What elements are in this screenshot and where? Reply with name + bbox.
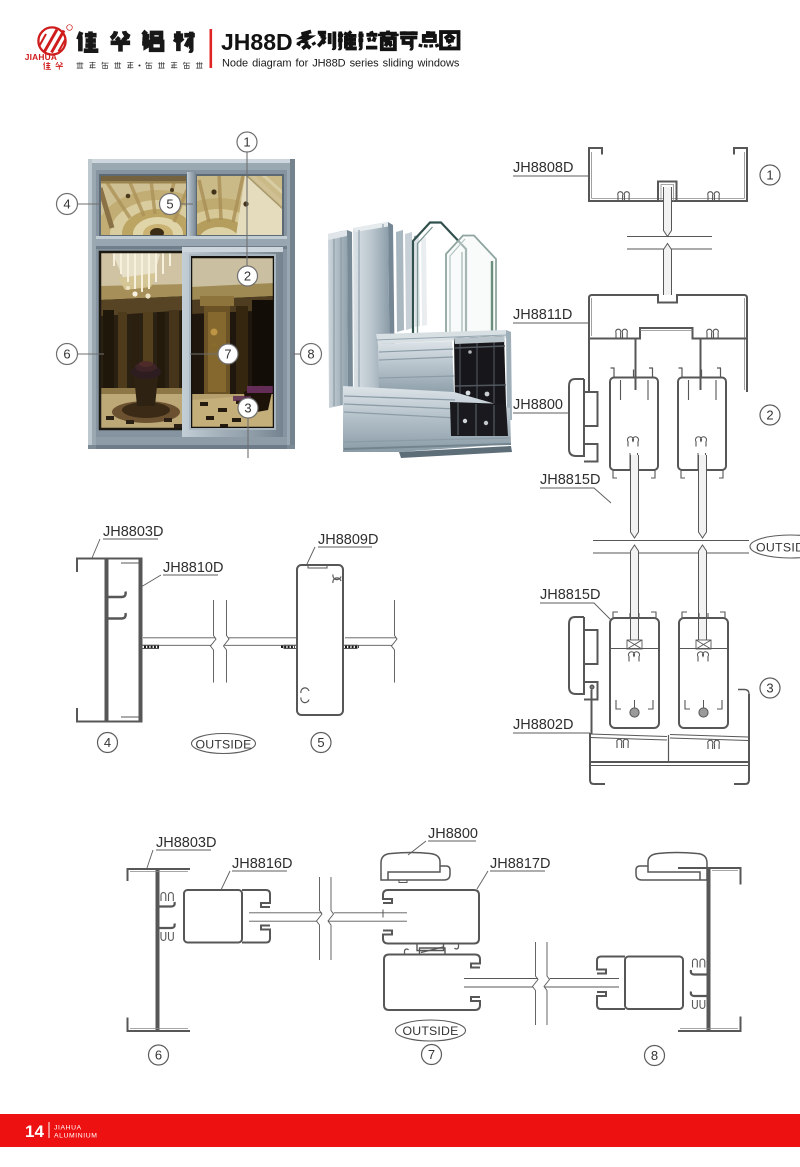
svg-text:14: 14 [25,1122,44,1141]
svg-text:OUTSIDE: OUTSIDE [402,1024,458,1038]
svg-text:7: 7 [224,347,231,362]
svg-text:JH88D: JH88D [221,29,293,55]
svg-text:8: 8 [307,347,314,362]
svg-text:OUTSIDE: OUTSIDE [756,541,800,555]
svg-text:5: 5 [166,197,173,212]
svg-text:JH8803D: JH8803D [156,835,216,851]
svg-text:2: 2 [766,408,773,423]
svg-text:2: 2 [244,269,251,284]
svg-text:6: 6 [155,1048,162,1063]
svg-text:JH8800: JH8800 [513,397,563,413]
svg-text:4: 4 [104,735,111,750]
svg-text:JH8803D: JH8803D [103,524,163,540]
svg-text:JH8802D: JH8802D [513,717,573,733]
svg-text:JH8810D: JH8810D [163,560,223,576]
svg-text:7: 7 [428,1047,435,1062]
svg-text:JIAHUA: JIAHUA [54,1125,82,1132]
svg-text:8: 8 [651,1048,658,1063]
svg-text:ALUMINIUM: ALUMINIUM [54,1133,98,1140]
svg-text:JIAHUA: JIAHUA [25,52,57,62]
svg-text:JH8800: JH8800 [428,826,478,842]
svg-text:JH8815D: JH8815D [540,587,600,603]
svg-text:JH8811D: JH8811D [513,307,572,323]
svg-text:JH8809D: JH8809D [318,532,378,548]
svg-text:JH8808D: JH8808D [513,160,573,176]
svg-text:OUTSIDE: OUTSIDE [195,738,251,752]
svg-text:5: 5 [317,735,324,750]
svg-text:1: 1 [243,135,250,150]
svg-text:4: 4 [63,197,70,212]
svg-text:JH8816D: JH8816D [232,856,292,872]
svg-text:JH8817D: JH8817D [490,856,550,872]
svg-text:6: 6 [63,347,70,362]
svg-text:3: 3 [766,681,773,696]
svg-text:3: 3 [244,401,251,416]
svg-text:JH8815D: JH8815D [540,472,600,488]
svg-text:1: 1 [766,168,773,183]
svg-text:Node diagram for JH88D series: Node diagram for JH88D series sliding wi… [222,58,460,70]
